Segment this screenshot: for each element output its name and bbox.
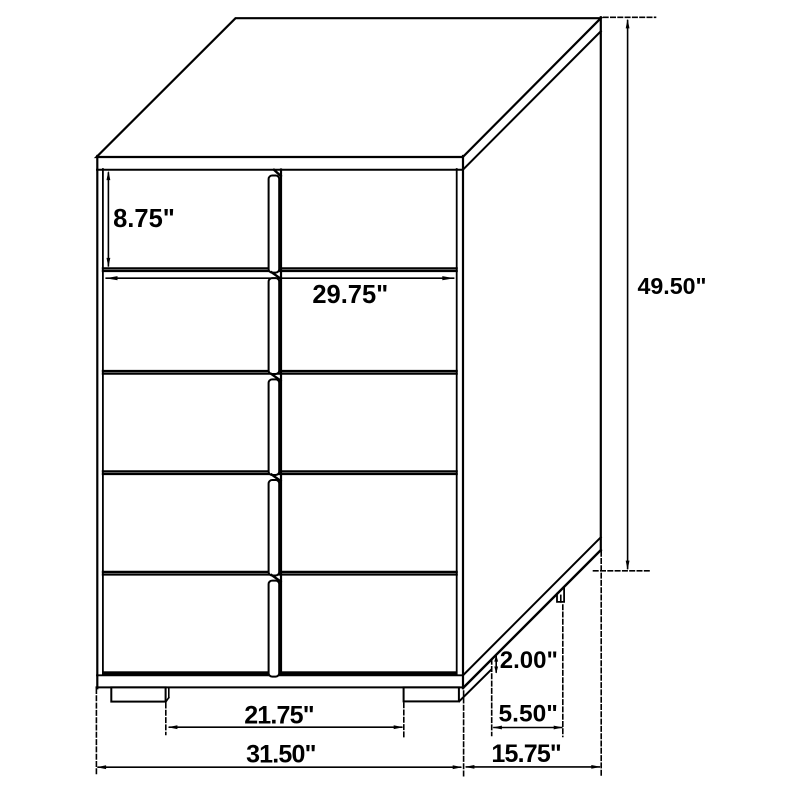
svg-text:29.75": 29.75" — [312, 281, 388, 309]
svg-text:2.00": 2.00" — [500, 647, 558, 674]
svg-text:21.75": 21.75" — [244, 701, 314, 729]
svg-text:31.50": 31.50" — [246, 741, 316, 769]
svg-text:49.50": 49.50" — [637, 273, 706, 299]
svg-text:8.75": 8.75" — [113, 205, 175, 233]
svg-text:15.75": 15.75" — [491, 740, 561, 768]
svg-text:5.50": 5.50" — [499, 701, 558, 728]
